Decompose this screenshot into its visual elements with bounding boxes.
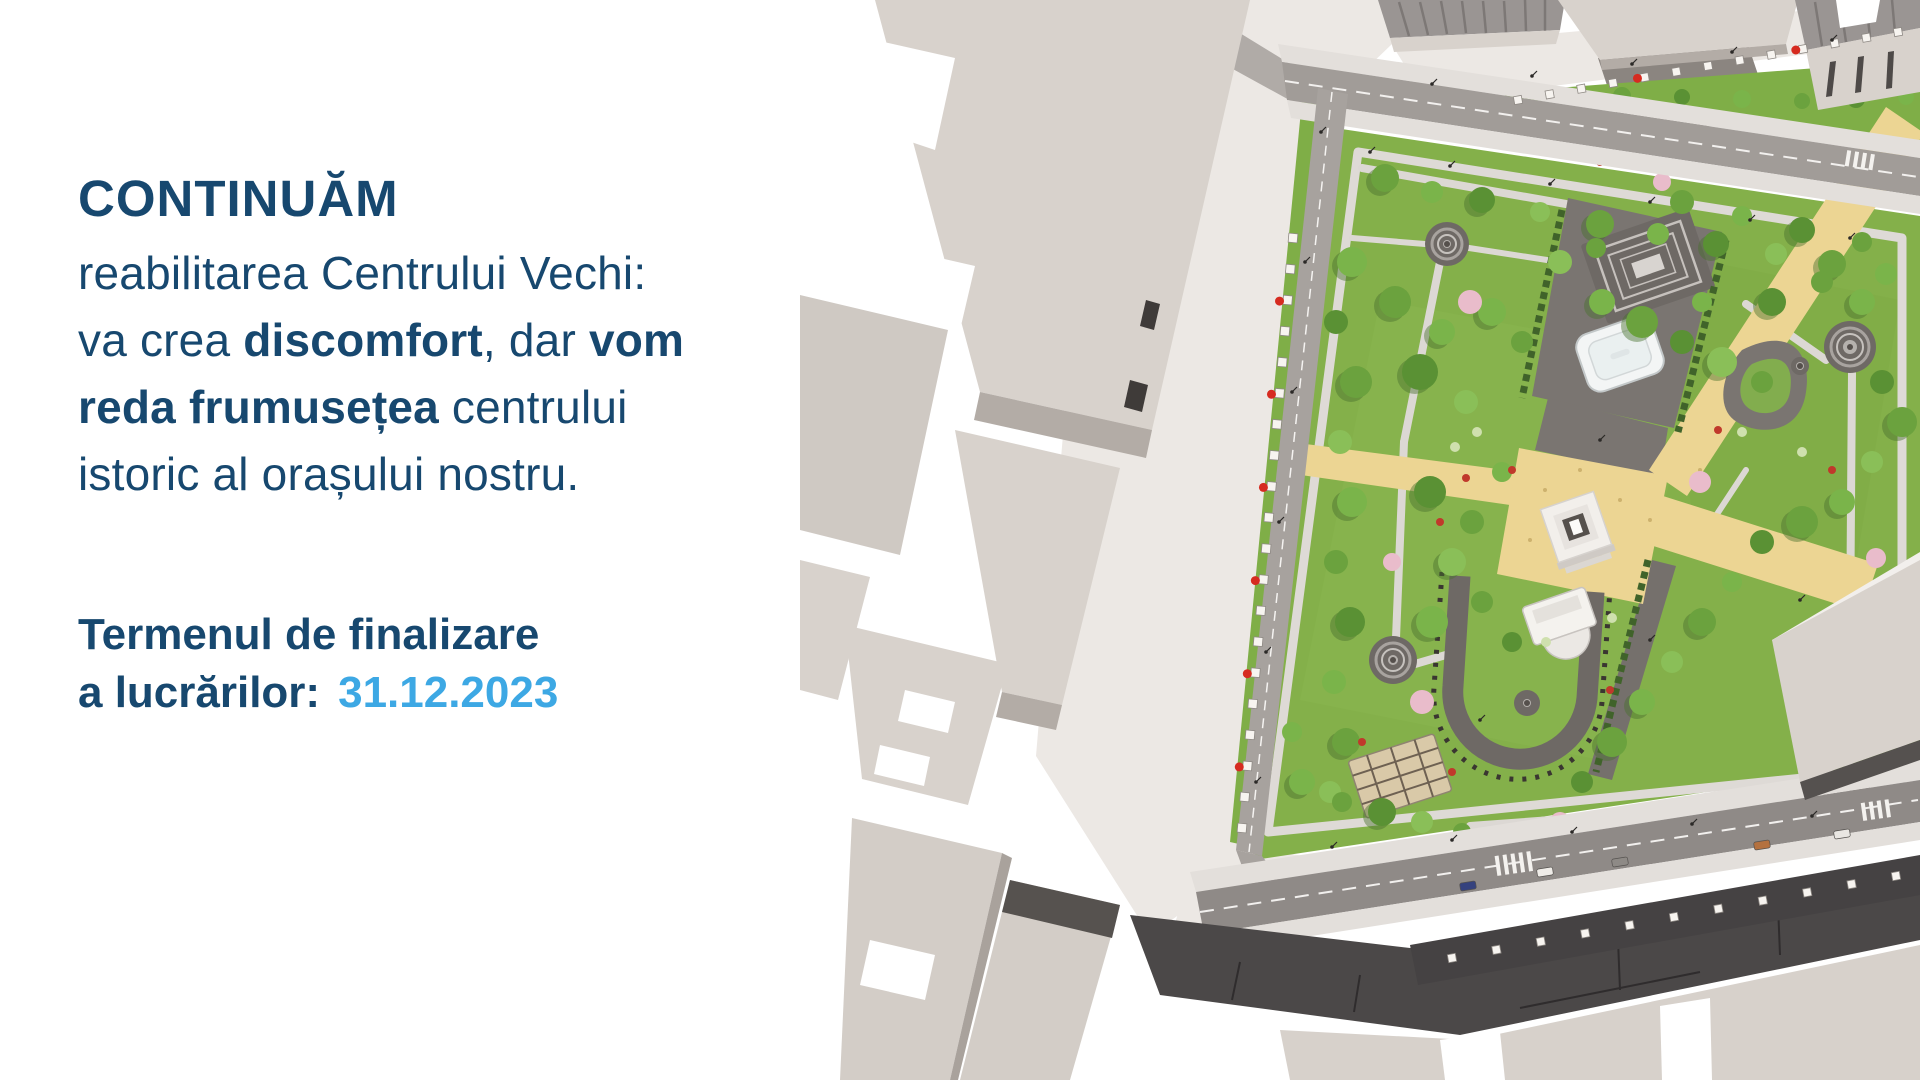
park-aerial-render — [0, 0, 1920, 1080]
lamp-post — [1798, 598, 1802, 602]
blossom-tree — [1383, 553, 1401, 571]
market-stall — [1847, 880, 1856, 889]
tree — [1322, 670, 1346, 694]
tree — [1829, 489, 1855, 515]
tree — [1597, 727, 1627, 757]
tree — [1324, 310, 1348, 334]
market-stall — [1672, 67, 1681, 76]
announcement-graphic: CONTINUĂM reabilitarea Centrului Vechi: … — [0, 0, 1920, 1080]
lamp-post — [1448, 164, 1452, 168]
tree — [1688, 608, 1716, 636]
fountain-jet — [1847, 344, 1853, 350]
tree — [1471, 591, 1493, 613]
tree — [1460, 510, 1484, 534]
market-stall — [1545, 90, 1554, 99]
blossom-tree — [1410, 690, 1434, 714]
tree — [1438, 548, 1466, 576]
lamp-post — [1630, 62, 1634, 66]
tree — [1849, 289, 1875, 315]
market-stall — [1248, 699, 1258, 709]
tree — [1692, 292, 1712, 312]
lamp-post — [1570, 830, 1574, 834]
tree — [1733, 90, 1751, 108]
tree — [1340, 366, 1372, 398]
tree — [1335, 607, 1365, 637]
tree — [1661, 651, 1683, 673]
tree — [1722, 572, 1742, 592]
fountain-jet — [1390, 657, 1396, 663]
market-stall — [1261, 544, 1271, 554]
market-stall — [1277, 357, 1287, 367]
lamp-post — [1548, 182, 1552, 186]
lamp-post — [1277, 520, 1281, 524]
market-stall — [1264, 513, 1274, 523]
red-shrub — [1828, 466, 1836, 474]
tree — [1337, 487, 1367, 517]
lamp-post — [1368, 150, 1372, 154]
tree — [1502, 632, 1522, 652]
market-stall — [1891, 871, 1900, 880]
market-stall — [1625, 921, 1634, 930]
lamp-post — [1319, 130, 1323, 134]
tree — [1571, 771, 1593, 793]
tree — [1750, 530, 1774, 554]
tree — [1289, 769, 1315, 795]
red-shrub — [1508, 466, 1516, 474]
market-stall — [1758, 896, 1767, 905]
market-stall — [1245, 730, 1255, 740]
tree — [1282, 722, 1302, 742]
light-bush — [1737, 427, 1747, 437]
blossom-tree — [1689, 471, 1711, 493]
tree — [1586, 210, 1614, 238]
market-stall — [1272, 419, 1282, 429]
tree — [1421, 181, 1443, 203]
blossom-tree — [1653, 173, 1671, 191]
lamp-post — [1730, 50, 1734, 54]
blossom-tree — [1866, 548, 1886, 568]
tree — [1811, 271, 1833, 293]
tree — [1751, 371, 1773, 393]
lamp-post — [1290, 390, 1294, 394]
fountain-jet — [1797, 363, 1803, 369]
market-stall — [1251, 668, 1261, 678]
market-stall — [1285, 264, 1295, 274]
lamp-post — [1303, 260, 1307, 264]
tree — [1429, 319, 1455, 345]
tree — [1324, 550, 1348, 574]
red-shrub — [1714, 426, 1722, 434]
tree — [1794, 93, 1810, 109]
red-umbrella — [1235, 762, 1244, 771]
market-stall — [1703, 61, 1712, 70]
blossom-tree — [1458, 290, 1482, 314]
red-shrub — [1462, 474, 1470, 482]
tree — [1703, 231, 1729, 257]
red-shrub — [1436, 518, 1444, 526]
market-stall — [1256, 606, 1266, 616]
tree — [1332, 792, 1352, 812]
market-stall — [1237, 823, 1247, 833]
lamp-post — [1830, 38, 1834, 42]
fountain-jet — [1444, 241, 1450, 247]
tree — [1647, 223, 1669, 245]
tree — [1758, 288, 1786, 316]
tree — [1732, 206, 1752, 226]
market-stall — [1253, 637, 1263, 647]
tree — [1337, 247, 1367, 277]
light-bush — [1450, 442, 1460, 452]
market-stall — [1803, 888, 1812, 897]
tree — [1478, 298, 1506, 326]
tree — [1670, 190, 1694, 214]
market-stall — [1714, 904, 1723, 913]
tree — [1414, 476, 1446, 508]
tree — [1786, 506, 1818, 538]
red-shrub — [1606, 686, 1614, 694]
lamp-post — [1264, 650, 1268, 654]
market-stall — [1492, 945, 1501, 954]
market-stall — [1275, 388, 1285, 398]
lamp-post — [1690, 822, 1694, 826]
market-stall — [1608, 78, 1617, 87]
tree — [1870, 370, 1894, 394]
light-bush — [1472, 427, 1482, 437]
market-stall — [1288, 233, 1298, 243]
tree — [1379, 286, 1411, 318]
red-umbrella — [1251, 576, 1260, 585]
tree — [1586, 238, 1606, 258]
fountain-jet — [1524, 700, 1530, 706]
lamp-post — [1848, 236, 1852, 240]
market-stall — [1735, 56, 1744, 65]
tree — [1875, 263, 1897, 285]
lamp-post — [1748, 218, 1752, 222]
tree — [1629, 689, 1655, 715]
red-shrub — [1448, 768, 1456, 776]
lamp-post — [1810, 814, 1814, 818]
tree — [1368, 798, 1396, 826]
tree — [1548, 250, 1572, 274]
lamp-post — [1648, 200, 1652, 204]
market-stall — [1581, 929, 1590, 938]
tree — [1411, 811, 1433, 833]
red-shrub — [1358, 738, 1366, 746]
lamp-post — [1254, 780, 1258, 784]
tree — [1328, 430, 1352, 454]
market-stall — [1259, 575, 1269, 585]
red-umbrella — [1275, 297, 1284, 306]
tree — [1707, 347, 1737, 377]
lamp-post — [1530, 74, 1534, 78]
market-stall — [1280, 326, 1290, 336]
tree — [1454, 390, 1478, 414]
tree — [1852, 232, 1872, 252]
light-bush — [1797, 447, 1807, 457]
red-umbrella — [1259, 483, 1268, 492]
market-stall — [1242, 761, 1252, 771]
tree — [1765, 243, 1787, 265]
market-stall — [1240, 792, 1250, 802]
market-stall — [1267, 482, 1277, 492]
lamp-post — [1430, 82, 1434, 86]
market-stall — [1767, 50, 1776, 59]
tree — [1511, 331, 1533, 353]
market-stall — [1283, 295, 1293, 305]
tree — [1530, 202, 1550, 222]
red-umbrella — [1791, 46, 1800, 55]
lamp-post — [1330, 845, 1334, 849]
tree — [1861, 451, 1883, 473]
market-stall — [1536, 937, 1545, 946]
market-stall — [1577, 84, 1586, 93]
tree — [1469, 187, 1495, 213]
tree — [1887, 407, 1917, 437]
tree — [1332, 728, 1360, 756]
lamp-post — [1450, 838, 1454, 842]
market-stall — [1513, 95, 1522, 104]
red-umbrella — [1267, 390, 1276, 399]
tree — [1674, 89, 1690, 105]
tree — [1371, 164, 1399, 192]
light-bush — [1541, 637, 1551, 647]
market-stall — [1447, 953, 1456, 962]
market-stall — [1269, 450, 1279, 460]
market-stall — [1862, 33, 1871, 42]
tree — [1416, 606, 1448, 638]
red-umbrella — [1243, 669, 1252, 678]
lamp-post — [1648, 638, 1652, 642]
red-umbrella — [1633, 74, 1642, 83]
tree — [1789, 217, 1815, 243]
tree — [1670, 330, 1694, 354]
tree — [1402, 354, 1438, 390]
tree — [1589, 289, 1615, 315]
light-bush — [1607, 613, 1617, 623]
market-stall — [1669, 912, 1678, 921]
lamp-post — [1478, 718, 1482, 722]
lamp-post — [1598, 438, 1602, 442]
tree — [1626, 306, 1658, 338]
market-stall — [1893, 27, 1902, 36]
